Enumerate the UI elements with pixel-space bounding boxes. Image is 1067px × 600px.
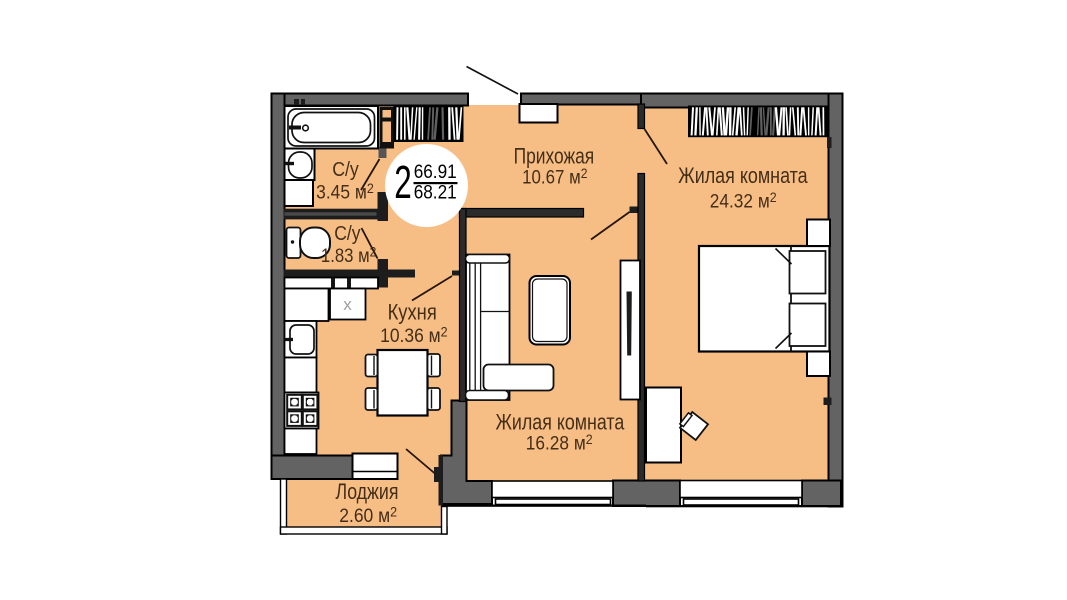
svg-text:1.83 м2: 1.83 м2 [321, 244, 377, 268]
svg-text:x: x [343, 295, 352, 314]
svg-text:2: 2 [394, 156, 412, 208]
svg-text:Кухня: Кухня [388, 299, 437, 324]
svg-text:10.36 м2: 10.36 м2 [380, 324, 448, 348]
svg-text:Жилая комната: Жилая комната [495, 409, 625, 434]
svg-text:С/у: С/у [332, 159, 359, 181]
svg-text:Лоджия: Лоджия [336, 479, 399, 504]
svg-text:Жилая комната: Жилая комната [678, 163, 808, 188]
svg-text:24.32 м2: 24.32 м2 [710, 189, 777, 213]
svg-text:68.21: 68.21 [414, 182, 457, 204]
svg-text:2.60 м2: 2.60 м2 [339, 504, 397, 528]
svg-text:С/у: С/у [334, 223, 360, 245]
svg-text:10.67 м2: 10.67 м2 [522, 165, 587, 189]
svg-text:16.28 м2: 16.28 м2 [526, 431, 593, 455]
svg-text:66.91: 66.91 [414, 161, 457, 183]
svg-text:3.45 м2: 3.45 м2 [316, 180, 374, 204]
